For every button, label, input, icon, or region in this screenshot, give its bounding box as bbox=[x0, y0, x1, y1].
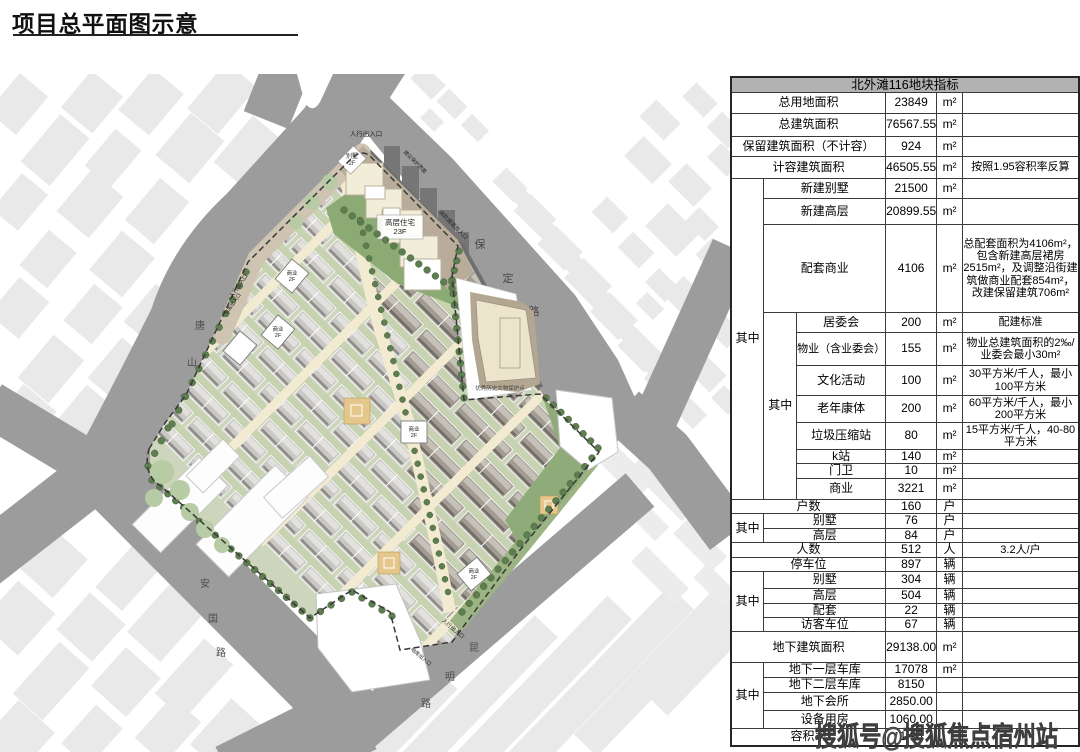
svg-text:商业: 商业 bbox=[286, 269, 298, 277]
svg-text:2F: 2F bbox=[411, 433, 418, 439]
svg-text:安: 安 bbox=[200, 577, 210, 590]
svg-text:2F: 2F bbox=[289, 277, 296, 283]
svg-text:路: 路 bbox=[216, 646, 226, 659]
svg-text:2F: 2F bbox=[275, 333, 282, 339]
svg-text:2F: 2F bbox=[348, 161, 355, 167]
svg-text:唐: 唐 bbox=[195, 319, 205, 332]
svg-text:定: 定 bbox=[503, 271, 514, 285]
svg-text:明: 明 bbox=[445, 671, 455, 683]
svg-text:2F: 2F bbox=[471, 575, 478, 581]
svg-text:优秀历史文物保护点: 优秀历史文物保护点 bbox=[475, 384, 525, 392]
svg-text:23F: 23F bbox=[394, 227, 407, 236]
svg-text:国: 国 bbox=[208, 613, 218, 625]
svg-text:山: 山 bbox=[187, 357, 197, 369]
svg-text:昆: 昆 bbox=[469, 642, 479, 654]
svg-text:商业: 商业 bbox=[408, 425, 420, 433]
svg-text:商业: 商业 bbox=[468, 567, 480, 575]
svg-text:保: 保 bbox=[475, 237, 486, 251]
svg-text:路: 路 bbox=[421, 697, 431, 710]
svg-text:人行出入口: 人行出入口 bbox=[350, 129, 383, 138]
svg-text:商业: 商业 bbox=[272, 325, 284, 333]
svg-text:高层住宅: 高层住宅 bbox=[385, 217, 415, 227]
svg-text:别墅: 别墅 bbox=[346, 152, 358, 160]
